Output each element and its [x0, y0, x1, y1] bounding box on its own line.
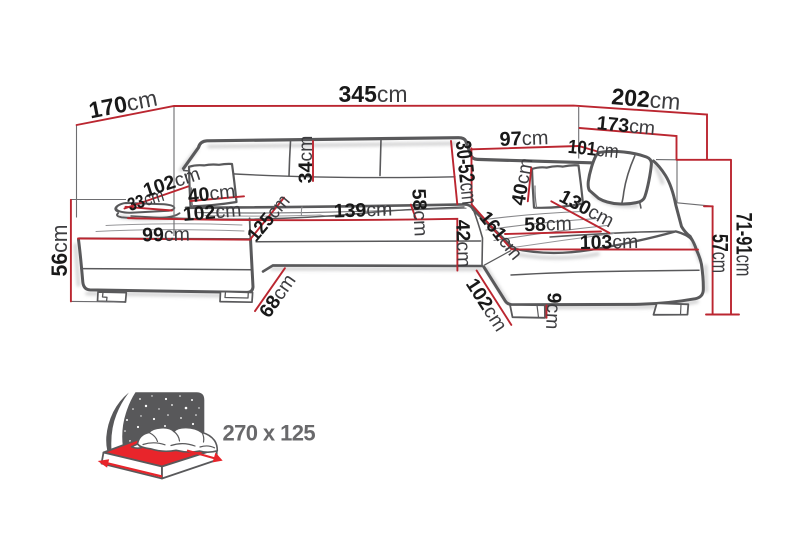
- svg-text:97cm: 97cm: [499, 127, 549, 151]
- svg-text:58cm: 58cm: [524, 213, 572, 236]
- svg-text:34cm: 34cm: [295, 136, 317, 184]
- svg-text:58cm: 58cm: [407, 188, 431, 237]
- svg-text:42cm: 42cm: [451, 219, 475, 267]
- svg-text:270 x 125: 270 x 125: [223, 421, 316, 446]
- svg-text:71-91cm: 71-91cm: [732, 213, 757, 277]
- svg-text:56cm: 56cm: [47, 225, 72, 277]
- svg-text:99cm: 99cm: [142, 224, 190, 247]
- svg-text:139cm: 139cm: [333, 198, 392, 222]
- svg-text:57cm: 57cm: [708, 234, 733, 273]
- svg-text:103cm: 103cm: [580, 231, 639, 254]
- svg-text:345cm: 345cm: [338, 81, 407, 107]
- svg-text:9cm: 9cm: [541, 292, 565, 330]
